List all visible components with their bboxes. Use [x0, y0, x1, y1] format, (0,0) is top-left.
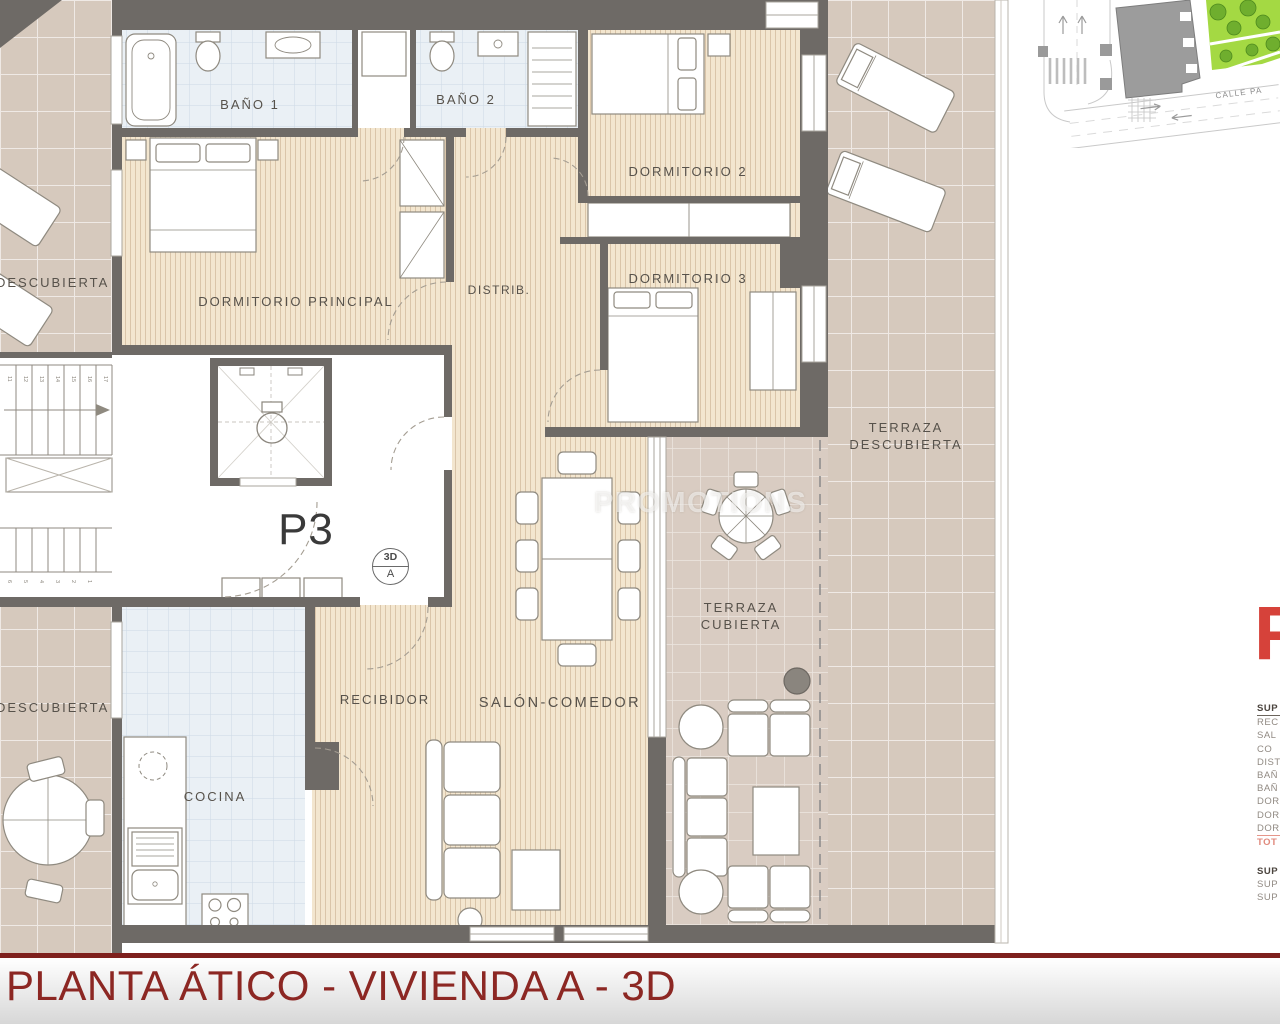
svg-text:14: 14: [54, 376, 60, 382]
surface-row: SUP: [1257, 702, 1280, 716]
surface-row: SUP: [1257, 891, 1280, 904]
svg-text:5: 5: [22, 580, 28, 583]
floorplan-page: 11 12 13 14 15 16 17 6 5 4 3 2 1: [0, 0, 1280, 1024]
surface-row-total: TOT: [1257, 835, 1280, 849]
unit-label: P3: [278, 505, 334, 555]
surface-row: DOR: [1257, 809, 1280, 822]
garden: [1206, 0, 1280, 70]
surface-row: BAÑ: [1257, 769, 1280, 782]
svg-text:12: 12: [22, 376, 28, 382]
surface-row: DOR: [1257, 795, 1280, 808]
site-location-map: CALLE PA: [1030, 0, 1280, 148]
svg-text:4: 4: [38, 580, 44, 583]
svg-text:13: 13: [38, 376, 44, 382]
label-terraza-cubierta: TERRAZA CUBIERTA: [701, 600, 782, 634]
label-distribuidor: DISTRIB.: [468, 283, 531, 297]
side-panel-letter: F: [1254, 596, 1280, 672]
label-dormitorio3: DORMITORIO 3: [628, 271, 747, 286]
svg-text:15: 15: [70, 376, 76, 382]
surface-row: DOR: [1257, 822, 1280, 835]
label-descubierta-top: DESCUBIERTA: [0, 275, 109, 290]
surface-row: BAÑ: [1257, 782, 1280, 795]
svg-text:16: 16: [86, 376, 92, 382]
label-terraza-descubierta: TERRAZA DESCUBIERTA: [849, 420, 962, 454]
surface-row: DIST: [1257, 756, 1280, 769]
surface-row: CO: [1257, 743, 1280, 756]
svg-text:6: 6: [6, 580, 12, 583]
svg-text:11: 11: [6, 376, 12, 382]
svg-text:2: 2: [70, 580, 76, 583]
surface-row: SAL: [1257, 729, 1280, 742]
svg-text:17: 17: [102, 376, 108, 382]
surface-row: SUP: [1257, 878, 1280, 891]
svg-text:3: 3: [54, 580, 60, 583]
label-cocina: COCINA: [184, 789, 247, 804]
surface-row: REC: [1257, 716, 1280, 729]
label-bano2: BAÑO 2: [436, 92, 496, 107]
label-bano1: BAÑO 1: [220, 97, 280, 112]
surface-table: SUP REC SAL CO DIST BAÑ BAÑ DOR DOR DOR …: [1257, 702, 1280, 905]
view-3d-marker: 3D A: [372, 548, 409, 585]
elevator: [218, 366, 324, 478]
label-salon-comedor: SALÓN-COMEDOR: [479, 695, 641, 711]
label-descubierta-bottom: DESCUBIERTA: [0, 700, 109, 715]
floor-plan-graphic: 11 12 13 14 15 16 17 6 5 4 3 2 1: [0, 0, 1010, 955]
svg-text:1: 1: [86, 580, 92, 583]
surface-row: SUP: [1257, 865, 1280, 878]
label-recibidor: RECIBIDOR: [340, 692, 430, 707]
label-dormitorio-principal: DORMITORIO PRINCIPAL: [198, 294, 394, 309]
label-dormitorio2: DORMITORIO 2: [628, 164, 747, 179]
page-title: PLANTA ÁTICO - VIVIENDA A - 3D: [6, 962, 676, 1010]
